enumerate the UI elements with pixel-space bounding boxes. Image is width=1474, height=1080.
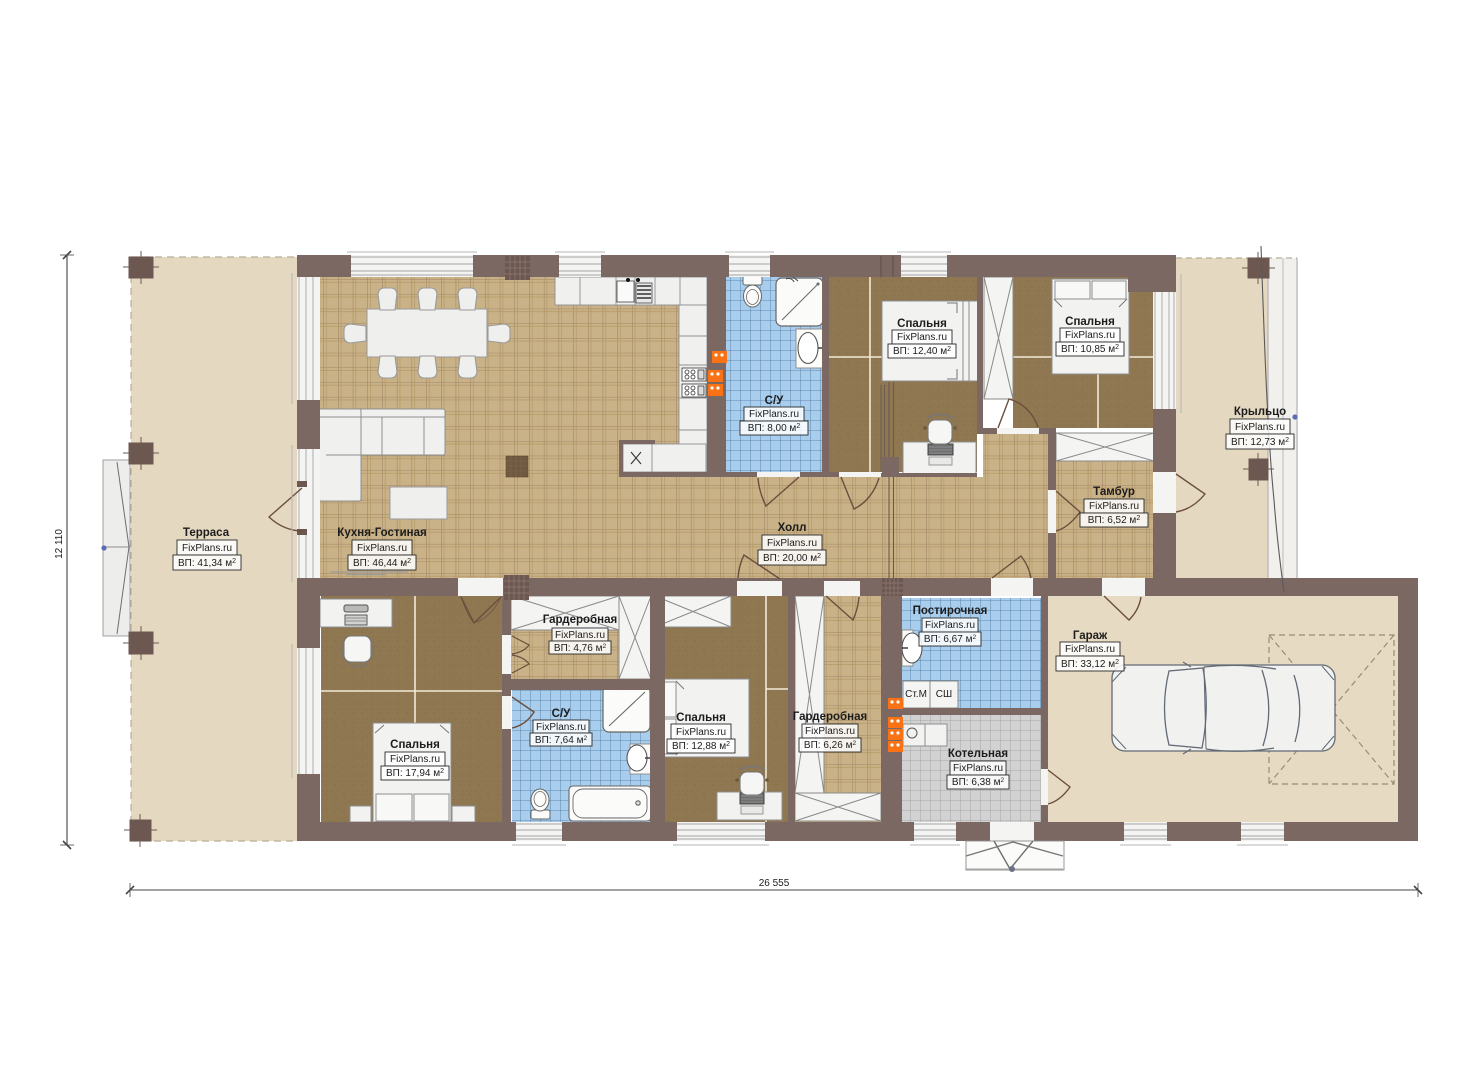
svg-text:Гардеробная: Гардеробная — [543, 614, 617, 626]
svg-text:Спальня: Спальня — [897, 318, 947, 330]
svg-text:Котельная: Котельная — [948, 748, 1008, 760]
svg-text:ВП: 12,40 м2: ВП: 12,40 м2 — [893, 346, 951, 357]
svg-text:Холл: Холл — [778, 522, 807, 534]
svg-text:FixPlans.ru: FixPlans.ru — [555, 630, 605, 641]
svg-text:Постирочная: Постирочная — [913, 605, 988, 617]
svg-text:Ст.М: Ст.М — [905, 689, 927, 700]
svg-text:ВП: 6,26 м2: ВП: 6,26 м2 — [804, 740, 857, 751]
svg-text:ВП: 4,76 м2: ВП: 4,76 м2 — [554, 643, 607, 654]
svg-text:Крыльцо: Крыльцо — [1234, 406, 1286, 418]
svg-text:ВП: 33,12 м2: ВП: 33,12 м2 — [1061, 659, 1119, 670]
svg-text:ВП: 6,67 м2: ВП: 6,67 м2 — [924, 634, 977, 645]
svg-text:FixPlans.ru: FixPlans.ru — [925, 620, 975, 631]
svg-text:ВП: 12,88 м2: ВП: 12,88 м2 — [672, 741, 730, 752]
svg-text:FixPlans.ru: FixPlans.ru — [749, 409, 799, 420]
svg-text:Гардеробная: Гардеробная — [793, 711, 867, 723]
svg-text:FixPlans.ru: FixPlans.ru — [805, 726, 855, 737]
svg-text:FixPlans.ru: FixPlans.ru — [1065, 330, 1115, 341]
svg-text:FixPlans.ru: FixPlans.ru — [1065, 644, 1115, 655]
svg-text:FixPlans.ru: FixPlans.ru — [1235, 422, 1285, 433]
svg-text:FixPlans.ru: FixPlans.ru — [182, 543, 232, 554]
svg-text:Спальня: Спальня — [676, 712, 726, 724]
svg-text:ВП: 17,94 м2: ВП: 17,94 м2 — [386, 768, 444, 779]
svg-text:ВП: 6,38 м2: ВП: 6,38 м2 — [952, 777, 1005, 788]
svg-text:FixPlans.ru: FixPlans.ru — [676, 727, 726, 738]
svg-text:26 555: 26 555 — [759, 878, 790, 889]
svg-text:Кухня-Гостиная: Кухня-Гостиная — [337, 527, 426, 539]
svg-text:12 110: 12 110 — [54, 529, 65, 559]
svg-text:FixPlans.ru: FixPlans.ru — [767, 538, 817, 549]
svg-text:Спальня: Спальня — [1065, 316, 1115, 328]
svg-text:FixPlans.ru: FixPlans.ru — [390, 754, 440, 765]
svg-text:FixPlans.ru: FixPlans.ru — [357, 543, 407, 554]
svg-text:ВП: 12,73 м2: ВП: 12,73 м2 — [1231, 437, 1289, 448]
svg-text:ВП: 46,44 м2: ВП: 46,44 м2 — [353, 558, 411, 569]
svg-text:С/У: С/У — [552, 708, 572, 720]
svg-text:ВП: 8,00 м2: ВП: 8,00 м2 — [748, 423, 801, 434]
svg-text:ВП: 41,34 м2: ВП: 41,34 м2 — [178, 558, 236, 569]
svg-text:Спальня: Спальня — [390, 739, 440, 751]
svg-text:Терраса: Терраса — [183, 527, 230, 539]
svg-text:ВП: 10,85 м2: ВП: 10,85 м2 — [1061, 344, 1119, 355]
svg-text:С/У: С/У — [765, 395, 785, 407]
svg-text:СШ: СШ — [936, 689, 952, 700]
svg-text:ВП: 20,00 м2: ВП: 20,00 м2 — [763, 553, 821, 564]
svg-text:ВП: 6,52 м2: ВП: 6,52 м2 — [1088, 515, 1141, 526]
svg-text:Тамбур: Тамбур — [1093, 486, 1135, 498]
svg-text:FixPlans.ru: FixPlans.ru — [897, 332, 947, 343]
svg-text:FixPlans.ru: FixPlans.ru — [536, 722, 586, 733]
svg-text:ВП: 7,64 м2: ВП: 7,64 м2 — [535, 735, 588, 746]
svg-text:FixPlans.ru: FixPlans.ru — [1089, 501, 1139, 512]
svg-text:Гараж: Гараж — [1073, 630, 1108, 642]
svg-text:FixPlans.ru: FixPlans.ru — [953, 763, 1003, 774]
